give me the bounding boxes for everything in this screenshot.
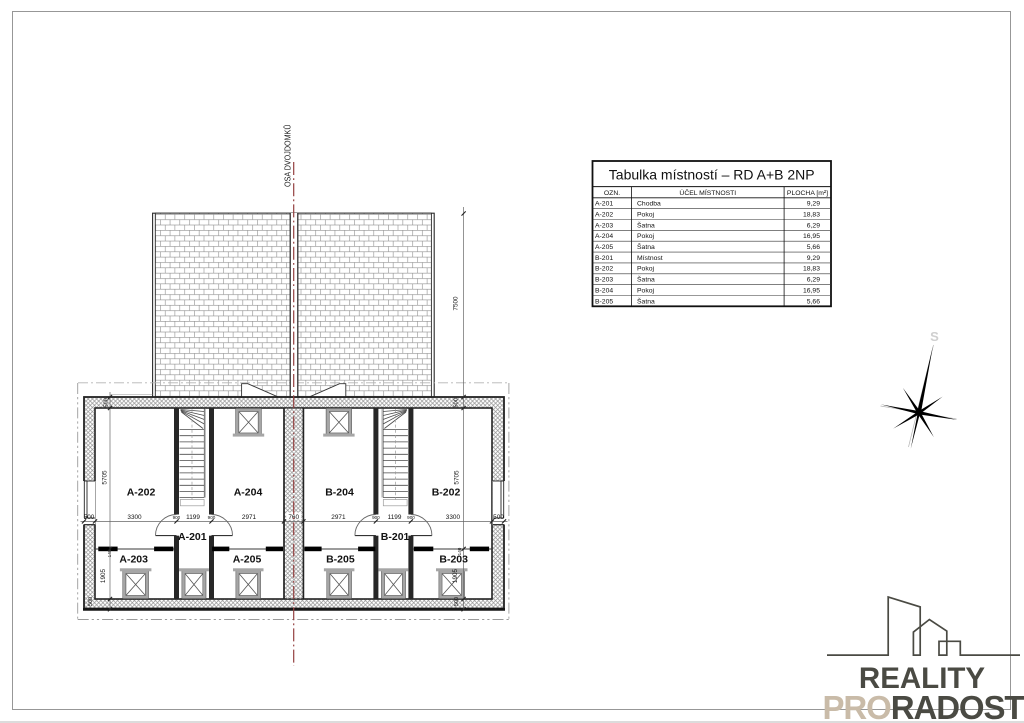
svg-text:500: 500 bbox=[454, 597, 460, 606]
svg-text:Místnost: Místnost bbox=[637, 255, 663, 262]
svg-text:Šatna: Šatna bbox=[637, 275, 655, 284]
svg-text:A-203: A-203 bbox=[595, 222, 613, 229]
svg-text:B-204: B-204 bbox=[325, 487, 354, 499]
svg-text:S: S bbox=[930, 329, 939, 344]
svg-text:OSA DVOJDOMKŮ: OSA DVOJDOMKŮ bbox=[283, 124, 292, 187]
svg-text:5,66: 5,66 bbox=[807, 244, 820, 251]
svg-text:B-203: B-203 bbox=[439, 554, 468, 566]
svg-text:2971: 2971 bbox=[242, 514, 257, 521]
svg-text:B-205: B-205 bbox=[595, 298, 613, 305]
svg-text:3300: 3300 bbox=[446, 514, 461, 521]
svg-text:900: 900 bbox=[208, 515, 216, 520]
svg-text:B-204: B-204 bbox=[595, 287, 613, 294]
svg-text:Pokoj: Pokoj bbox=[637, 287, 654, 294]
svg-text:B-202: B-202 bbox=[595, 266, 613, 273]
svg-text:6,29: 6,29 bbox=[807, 222, 820, 229]
svg-text:500: 500 bbox=[493, 514, 504, 521]
svg-text:Pokoj: Pokoj bbox=[637, 233, 654, 240]
svg-text:500: 500 bbox=[104, 398, 110, 407]
svg-text:A-204: A-204 bbox=[595, 233, 613, 240]
svg-text:Šatna: Šatna bbox=[637, 296, 655, 305]
svg-text:B-201: B-201 bbox=[381, 531, 410, 543]
svg-text:A-205: A-205 bbox=[233, 554, 262, 566]
svg-text:1905: 1905 bbox=[100, 568, 107, 583]
svg-text:A-201: A-201 bbox=[595, 201, 613, 208]
svg-text:2971: 2971 bbox=[331, 514, 346, 521]
svg-text:A-203: A-203 bbox=[119, 554, 148, 566]
svg-text:16,95: 16,95 bbox=[803, 233, 820, 240]
svg-text:900: 900 bbox=[173, 515, 181, 520]
svg-text:B-202: B-202 bbox=[432, 487, 461, 499]
svg-text:9,29: 9,29 bbox=[807, 255, 820, 262]
svg-text:18,83: 18,83 bbox=[803, 212, 820, 219]
svg-text:6,29: 6,29 bbox=[807, 277, 820, 284]
svg-text:Pokoj: Pokoj bbox=[637, 212, 654, 219]
svg-text:Tabulka místností – RD A+B 2NP: Tabulka místností – RD A+B 2NP bbox=[609, 167, 815, 183]
svg-text:1199: 1199 bbox=[186, 514, 200, 521]
svg-text:OZN.: OZN. bbox=[604, 190, 620, 197]
svg-text:3300: 3300 bbox=[127, 514, 142, 521]
svg-text:A-205: A-205 bbox=[595, 244, 613, 251]
svg-text:A-204: A-204 bbox=[234, 487, 263, 499]
svg-text:500: 500 bbox=[88, 597, 94, 606]
svg-text:PLOCHA [m²]: PLOCHA [m²] bbox=[787, 190, 828, 197]
svg-text:Pokoj: Pokoj bbox=[637, 266, 654, 273]
svg-text:A-202: A-202 bbox=[595, 212, 613, 219]
svg-text:500: 500 bbox=[84, 514, 95, 521]
svg-text:9,29: 9,29 bbox=[807, 201, 820, 208]
svg-text:Šatna: Šatna bbox=[637, 220, 655, 229]
svg-text:B-201: B-201 bbox=[595, 255, 613, 262]
svg-text:5,66: 5,66 bbox=[807, 298, 820, 305]
svg-text:B-205: B-205 bbox=[326, 554, 355, 566]
svg-text:A-202: A-202 bbox=[127, 487, 156, 499]
svg-text:16,95: 16,95 bbox=[803, 287, 820, 294]
svg-text:PRORADOST: PRORADOST bbox=[823, 689, 1024, 723]
svg-text:18,83: 18,83 bbox=[803, 266, 820, 273]
svg-text:B-203: B-203 bbox=[595, 277, 613, 284]
svg-text:5705: 5705 bbox=[454, 470, 461, 485]
svg-text:7500: 7500 bbox=[453, 296, 460, 311]
svg-text:5705: 5705 bbox=[101, 470, 108, 485]
svg-text:1199: 1199 bbox=[388, 514, 402, 521]
svg-text:500: 500 bbox=[453, 398, 459, 407]
svg-text:ÚČEL MÍSTNOSTI: ÚČEL MÍSTNOSTI bbox=[679, 188, 736, 197]
svg-text:140: 140 bbox=[107, 549, 112, 557]
svg-text:900: 900 bbox=[372, 515, 380, 520]
svg-text:A-201: A-201 bbox=[178, 531, 207, 543]
svg-text:1905: 1905 bbox=[452, 568, 459, 583]
svg-text:Chodba: Chodba bbox=[637, 201, 661, 208]
svg-text:900: 900 bbox=[407, 515, 415, 520]
svg-text:Šatna: Šatna bbox=[637, 242, 655, 251]
